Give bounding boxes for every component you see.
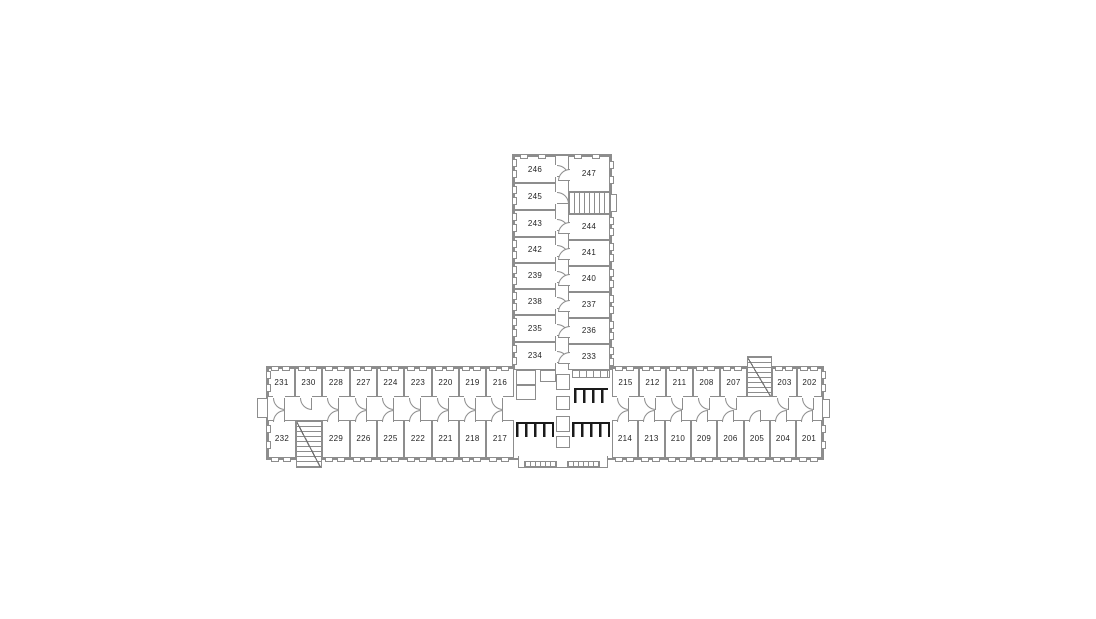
room-label-206: 206 [718, 434, 743, 443]
room-233: 233 [568, 344, 610, 370]
room-226: 226 [350, 420, 377, 458]
window-mark [512, 345, 517, 353]
window-mark [283, 457, 291, 462]
window-mark [520, 154, 528, 159]
room-label-215: 215 [613, 377, 638, 386]
room-label-209: 209 [692, 434, 716, 443]
room-label-220: 220 [433, 377, 458, 386]
room-label-243: 243 [515, 218, 555, 227]
window-mark [512, 292, 517, 300]
room-label-210: 210 [666, 434, 690, 443]
room-229: 229 [322, 420, 350, 458]
window-mark [626, 457, 634, 462]
window-mark [679, 457, 687, 462]
window-mark [799, 457, 807, 462]
room-label-229: 229 [323, 434, 349, 443]
window-mark [512, 318, 517, 326]
floor-plan: 2462452432422392382352342472442412402372… [0, 0, 1096, 619]
room-215: 215 [612, 368, 639, 397]
window-mark [380, 366, 388, 371]
window-mark [668, 457, 676, 462]
core-closet-b [516, 385, 536, 400]
window-mark [609, 161, 614, 169]
window-mark [734, 366, 742, 371]
room-label-245: 245 [515, 191, 555, 200]
window-mark [609, 217, 614, 225]
window-mark [282, 366, 290, 371]
room-246: 246 [514, 156, 556, 183]
window-mark [298, 366, 306, 371]
window-mark [642, 366, 650, 371]
window-mark [473, 366, 481, 371]
room-239: 239 [514, 263, 556, 289]
window-mark [489, 366, 497, 371]
window-mark [435, 457, 443, 462]
room-label-205: 205 [745, 434, 769, 443]
window-mark [821, 371, 826, 379]
room-label-201: 201 [797, 434, 821, 443]
window-mark [609, 254, 614, 262]
window-mark [512, 329, 517, 337]
stair-northeast [747, 356, 772, 397]
room-240: 240 [568, 266, 610, 292]
window-mark [821, 425, 826, 433]
window-mark [609, 347, 614, 355]
window-mark [821, 384, 826, 392]
room-207: 207 [720, 368, 747, 397]
window-mark [462, 457, 470, 462]
window-mark [325, 457, 333, 462]
window-mark [512, 277, 517, 285]
porch-columns-right [567, 461, 600, 467]
room-223: 223 [404, 368, 432, 397]
window-mark [407, 366, 415, 371]
bathroom-stalls-se [572, 422, 610, 437]
room-228: 228 [322, 368, 350, 397]
window-mark [337, 366, 345, 371]
window-mark [609, 176, 614, 184]
window-mark [609, 332, 614, 340]
room-201: 201 [796, 420, 822, 458]
window-mark [435, 366, 443, 371]
room-227: 227 [350, 368, 377, 397]
window-mark [615, 457, 623, 462]
bathroom-stalls-ne [574, 388, 608, 403]
window-mark [696, 366, 704, 371]
window-mark [641, 457, 649, 462]
room-218: 218 [459, 420, 486, 458]
window-mark [462, 366, 470, 371]
room-241: 241 [568, 240, 610, 266]
window-mark [720, 457, 728, 462]
window-mark [391, 457, 399, 462]
window-mark [694, 457, 702, 462]
room-244: 244 [568, 214, 610, 240]
core-shaft-2 [556, 396, 570, 410]
room-label-221: 221 [433, 434, 458, 443]
window-mark [538, 154, 546, 159]
room-204: 204 [770, 420, 796, 458]
room-label-242: 242 [515, 245, 555, 254]
stair-southwest [296, 420, 322, 468]
window-mark [266, 371, 271, 379]
bathroom-stalls-sw [516, 422, 554, 437]
window-mark [747, 457, 755, 462]
window-mark [784, 457, 792, 462]
window-mark [609, 269, 614, 277]
room-label-218: 218 [460, 434, 485, 443]
room-219: 219 [459, 368, 486, 397]
room-220: 220 [432, 368, 459, 397]
window-mark [653, 366, 661, 371]
window-mark [609, 321, 614, 329]
window-mark [446, 457, 454, 462]
core-shaft-3 [556, 416, 570, 432]
room-225: 225 [377, 420, 404, 458]
room-235: 235 [514, 315, 556, 342]
window-mark [609, 306, 614, 314]
window-mark [512, 266, 517, 274]
core-closet-a [516, 370, 536, 385]
window-mark [512, 240, 517, 248]
window-mark [501, 366, 509, 371]
window-mark [723, 366, 731, 371]
room-label-214: 214 [613, 434, 637, 443]
window-mark [707, 366, 715, 371]
window-mark [512, 303, 517, 311]
window-mark [669, 366, 677, 371]
window-mark [271, 457, 279, 462]
room-label-240: 240 [569, 274, 609, 283]
window-mark [512, 224, 517, 232]
window-mark [821, 441, 826, 449]
room-232: 232 [268, 420, 296, 458]
room-216: 216 [486, 368, 514, 397]
room-label-213: 213 [639, 434, 664, 443]
window-mark [758, 457, 766, 462]
window-mark [353, 366, 361, 371]
room-label-230: 230 [296, 377, 321, 386]
window-mark [680, 366, 688, 371]
window-mark [501, 457, 509, 462]
room-222: 222 [404, 420, 432, 458]
window-mark [407, 457, 415, 462]
room-247: 247 [568, 156, 610, 192]
window-mark [473, 457, 481, 462]
room-202: 202 [797, 368, 822, 397]
window-mark [391, 366, 399, 371]
window-mark [489, 457, 497, 462]
window-mark [337, 457, 345, 462]
room-211: 211 [666, 368, 693, 397]
window-mark [652, 457, 660, 462]
window-mark [266, 425, 271, 433]
room-label-238: 238 [515, 297, 555, 306]
room-label-234: 234 [515, 351, 555, 360]
window-mark [609, 358, 614, 366]
room-214: 214 [612, 420, 638, 458]
room-label-216: 216 [487, 377, 513, 386]
room-label-211: 211 [667, 377, 692, 386]
room-230: 230 [295, 368, 322, 397]
room-label-227: 227 [351, 377, 376, 386]
window-mark [446, 366, 454, 371]
room-210: 210 [665, 420, 691, 458]
window-mark [574, 154, 582, 159]
window-mark [364, 457, 372, 462]
west-vestibule [257, 398, 268, 418]
room-label-232: 232 [269, 434, 295, 443]
window-mark [810, 366, 818, 371]
room-label-223: 223 [405, 377, 431, 386]
room-205: 205 [744, 420, 770, 458]
window-mark [419, 457, 427, 462]
window-mark [419, 366, 427, 371]
window-mark [512, 213, 517, 221]
room-245: 245 [514, 183, 556, 210]
window-mark [800, 366, 808, 371]
east-vestibule [822, 399, 830, 418]
window-mark [592, 154, 600, 159]
room-label-202: 202 [798, 377, 821, 386]
window-mark [309, 366, 317, 371]
window-mark [731, 457, 739, 462]
room-236: 236 [568, 318, 610, 344]
core-shaft-4 [556, 436, 570, 448]
window-mark [609, 295, 614, 303]
window-mark [775, 366, 783, 371]
room-label-236: 236 [569, 326, 609, 335]
room-label-203: 203 [773, 377, 796, 386]
window-mark [364, 366, 372, 371]
room-label-235: 235 [515, 323, 555, 332]
window-mark [626, 366, 634, 371]
room-label-237: 237 [569, 300, 609, 309]
room-224: 224 [377, 368, 404, 397]
window-mark [615, 366, 623, 371]
room-234: 234 [514, 342, 556, 370]
room-label-228: 228 [323, 377, 349, 386]
window-mark [773, 457, 781, 462]
room-label-207: 207 [721, 377, 746, 386]
room-213: 213 [638, 420, 665, 458]
room-206: 206 [717, 420, 744, 458]
room-label-233: 233 [569, 352, 609, 361]
room-label-231: 231 [269, 377, 294, 386]
room-label-244: 244 [569, 222, 609, 231]
room-212: 212 [639, 368, 666, 397]
room-label-224: 224 [378, 377, 403, 386]
room-label-239: 239 [515, 271, 555, 280]
window-mark [512, 251, 517, 259]
room-label-217: 217 [487, 434, 513, 443]
room-label-247: 247 [569, 169, 609, 178]
window-mark [353, 457, 361, 462]
room-label-219: 219 [460, 377, 485, 386]
room-231: 231 [268, 368, 295, 397]
room-label-204: 204 [771, 434, 795, 443]
room-221: 221 [432, 420, 459, 458]
room-242: 242 [514, 237, 556, 263]
window-mark [609, 243, 614, 251]
core-closet-c [540, 370, 556, 382]
window-mark [609, 280, 614, 288]
room-237: 237 [568, 292, 610, 318]
room-208: 208 [693, 368, 720, 397]
room-209: 209 [691, 420, 717, 458]
room-label-246: 246 [515, 164, 555, 173]
bathroom-sinks-ne [572, 370, 610, 378]
room-203: 203 [772, 368, 797, 397]
core-shaft-1 [556, 374, 570, 390]
window-mark [380, 457, 388, 462]
window-mark [325, 366, 333, 371]
room-label-208: 208 [694, 377, 719, 386]
window-mark [785, 366, 793, 371]
room-label-212: 212 [640, 377, 665, 386]
stair-north-wing-landing [610, 194, 617, 212]
floor-plan-page: 2462452432422392382352342472442412402372… [0, 0, 1096, 619]
room-label-222: 222 [405, 434, 431, 443]
window-mark [512, 357, 517, 365]
window-mark [512, 197, 517, 205]
room-label-241: 241 [569, 248, 609, 257]
window-mark [512, 159, 517, 167]
room-label-225: 225 [378, 434, 403, 443]
room-243: 243 [514, 210, 556, 237]
window-mark [609, 228, 614, 236]
window-mark [266, 441, 271, 449]
window-mark [512, 186, 517, 194]
room-238: 238 [514, 289, 556, 315]
room-217: 217 [486, 420, 514, 458]
stair-north-wing [568, 192, 610, 214]
window-mark [271, 366, 279, 371]
window-mark [512, 170, 517, 178]
room-label-226: 226 [351, 434, 376, 443]
porch-columns-left [524, 461, 557, 467]
window-mark [705, 457, 713, 462]
window-mark [266, 384, 271, 392]
window-mark [810, 457, 818, 462]
